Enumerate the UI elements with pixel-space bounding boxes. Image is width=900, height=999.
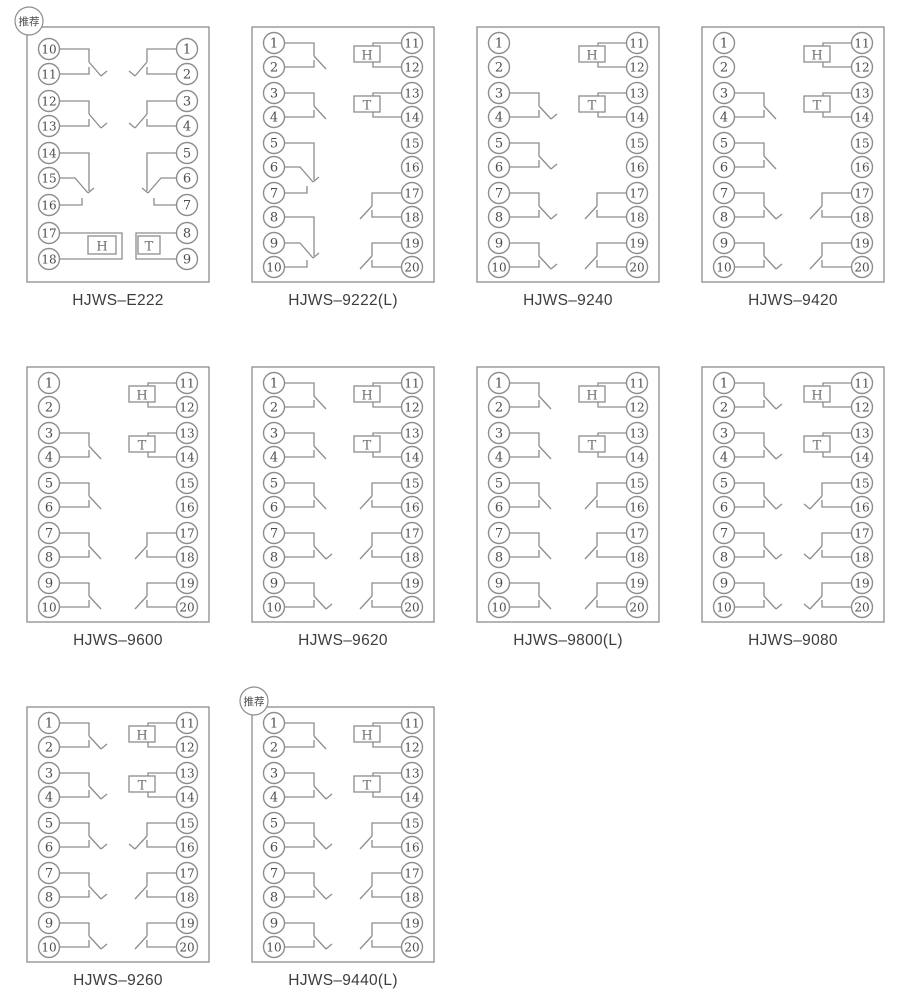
contact-nc-symbol-blade	[764, 496, 776, 509]
terminal-number: 9	[495, 577, 503, 592]
terminal-number: 14	[629, 111, 645, 125]
contact-no-symbol	[372, 923, 402, 936]
recommended-badge-label: 推荐	[19, 15, 40, 28]
terminal-number: 14	[404, 791, 420, 805]
terminal-number: 19	[629, 577, 644, 591]
contact-nc-symbol	[147, 101, 177, 114]
contact-nc-symbol	[147, 840, 177, 847]
terminal-number: 19	[404, 917, 419, 931]
terminal-number: 15	[854, 477, 869, 491]
contact-no-symbol-blade	[360, 836, 372, 849]
contact-nc-symbol-blade	[314, 786, 326, 799]
terminal-number: 16	[854, 501, 869, 515]
contact-no-symbol	[285, 740, 315, 747]
contact-no-symbol-blade	[360, 596, 372, 609]
nc-tick	[326, 844, 332, 849]
terminal-number: 15	[629, 137, 644, 151]
terminal-number: 5	[495, 477, 503, 492]
terminal-number: 8	[270, 551, 278, 566]
contact-no-symbol	[372, 483, 402, 496]
contact-nc-symbol	[822, 550, 852, 557]
contact-no-symbol-blade	[585, 496, 597, 509]
terminal-number: 15	[404, 137, 419, 151]
contact-no-symbol	[285, 450, 315, 457]
nc-tick	[326, 554, 332, 559]
nc-tick	[129, 844, 135, 849]
contact-nc-symbol-blade	[539, 256, 551, 269]
contact-nc-symbol	[822, 483, 852, 496]
contact-nc-symbol	[510, 93, 540, 106]
nc-tick	[776, 214, 782, 219]
terminal-number: 19	[629, 237, 644, 251]
changeover-symbol	[285, 260, 308, 267]
contact-nc-symbol	[510, 260, 540, 267]
contact-nc-symbol	[60, 923, 90, 936]
terminal-number: 10	[491, 601, 506, 615]
contact-nc-symbol	[510, 243, 540, 256]
contact-no-symbol	[147, 923, 177, 936]
contact-no-symbol	[60, 533, 90, 546]
changeover-symbol	[60, 153, 90, 191]
contact-nc-symbol-blade	[314, 886, 326, 899]
contact-nc-symbol	[735, 550, 765, 557]
contact-no-symbol-blade	[89, 546, 101, 559]
terminal-number: 18	[404, 551, 419, 565]
contact-no-symbol	[147, 583, 177, 596]
diagram-label: HJWS–9600	[73, 632, 163, 649]
contact-nc-symbol-blade	[89, 114, 101, 128]
terminal-number: 1	[720, 377, 728, 392]
terminal-number: 11	[854, 377, 869, 391]
contact-no-symbol	[285, 43, 315, 56]
terminal-number: 4	[270, 111, 278, 126]
contact-no-symbol-blade	[360, 936, 372, 949]
terminal-number: 12	[404, 741, 419, 755]
contact-no-symbol	[372, 940, 402, 947]
contact-no-symbol	[372, 890, 402, 897]
terminal-number: 12	[404, 61, 419, 75]
terminal-number: 9	[270, 917, 278, 932]
terminal-number: 10	[266, 261, 281, 275]
coil-letter: T	[363, 99, 372, 114]
contact-no-symbol	[285, 500, 315, 507]
nc-tick	[776, 554, 782, 559]
contact-nc-symbol-blade	[764, 596, 776, 609]
diagram-label: HJWS–E222	[72, 292, 163, 309]
terminal-number: 14	[854, 111, 870, 125]
coil-letter: H	[361, 389, 372, 404]
nc-tick	[101, 794, 107, 799]
terminal-number: 8	[45, 551, 53, 566]
nc-tick	[804, 554, 810, 559]
terminal-number: 11	[404, 37, 419, 51]
terminal-number: 18	[179, 551, 194, 565]
terminal-number: 20	[854, 261, 869, 275]
contact-nc-symbol-blade	[539, 106, 551, 119]
nc-tick	[326, 794, 332, 799]
contact-no-symbol-blade	[314, 396, 326, 409]
contact-no-symbol-blade	[585, 596, 597, 609]
terminal-number: 15	[404, 477, 419, 491]
terminal-number: 12	[41, 95, 56, 109]
contact-no-symbol	[372, 210, 402, 217]
terminal-number: 10	[41, 43, 56, 57]
changeover-symbol	[285, 217, 315, 256]
contact-no-symbol	[372, 550, 402, 557]
contact-no-symbol-blade	[585, 206, 597, 219]
terminal-number: 19	[404, 577, 419, 591]
terminal-number: 16	[404, 501, 419, 515]
contact-no-symbol	[597, 483, 627, 496]
nc-tick	[326, 604, 332, 609]
changeover-symbol	[60, 198, 83, 205]
diagram-label: HJWS–9222(L)	[288, 292, 398, 309]
terminal-number: 9	[270, 577, 278, 592]
terminal-number: 3	[270, 87, 278, 102]
terminal-number: 14	[179, 451, 195, 465]
nc-tick	[326, 944, 332, 949]
terminal-number: 20	[179, 601, 194, 615]
diagram-label: HJWS–9620	[298, 632, 388, 649]
contact-nc-symbol-blade	[539, 206, 551, 219]
terminal-number: 5	[720, 477, 728, 492]
contact-nc-symbol	[735, 450, 765, 457]
terminal-number: 19	[179, 577, 194, 591]
contact-no-symbol-blade	[135, 546, 147, 559]
terminal-number: 16	[404, 161, 419, 175]
contact-nc-symbol	[510, 160, 540, 167]
terminal-number: 8	[495, 551, 503, 566]
terminal-number: 18	[854, 551, 869, 565]
recommended-badge-label: 推荐	[244, 695, 265, 708]
terminal-number: 8	[45, 891, 53, 906]
terminal-number: 2	[45, 401, 53, 416]
contact-no-symbol	[822, 193, 852, 206]
nc-tick	[101, 744, 107, 749]
contact-nc-symbol	[60, 840, 90, 847]
terminal-number: 13	[404, 767, 419, 781]
contact-no-symbol	[597, 193, 627, 206]
contact-nc-symbol	[60, 101, 90, 114]
contact-nc-symbol-blade	[539, 156, 551, 169]
terminal-number: 8	[270, 891, 278, 906]
terminal-number: 13	[179, 767, 194, 781]
contact-no-symbol	[822, 243, 852, 256]
diagram-cell-hjws-9222l: HT1234567891011121314151617181920HJWS–92…	[230, 5, 456, 357]
contact-nc-symbol	[285, 873, 315, 886]
contact-no-symbol	[510, 483, 540, 496]
terminal-number: 2	[495, 61, 503, 76]
contact-no-symbol	[510, 400, 540, 407]
terminal-number: 20	[179, 941, 194, 955]
contact-nc-symbol-blade	[810, 546, 822, 559]
contact-nc-symbol	[735, 260, 765, 267]
terminal-number: 15	[404, 817, 419, 831]
terminal-number: 18	[179, 891, 194, 905]
terminal-number: 15	[179, 817, 194, 831]
contact-nc-symbol	[510, 193, 540, 206]
terminal-number: 6	[270, 501, 278, 516]
diagram-label: HJWS–9420	[748, 292, 838, 309]
terminal-number: 1	[270, 377, 278, 392]
contact-no-symbol	[147, 940, 177, 947]
terminal-number: 5	[270, 817, 278, 832]
terminal-number: 19	[179, 917, 194, 931]
contact-nc-symbol	[735, 243, 765, 256]
contact-nc-symbol	[735, 583, 765, 596]
terminal-number: 9	[183, 253, 191, 268]
terminal-number: 14	[629, 451, 645, 465]
nc-tick	[776, 604, 782, 609]
terminal-number: 16	[179, 501, 194, 515]
nc-tick	[101, 844, 107, 849]
terminal-number: 17	[179, 527, 194, 541]
contact-no-symbol	[597, 260, 627, 267]
terminal-number: 17	[854, 527, 869, 541]
terminal-number: 16	[404, 841, 419, 855]
terminal-number: 7	[495, 187, 503, 202]
coil-letter: H	[361, 729, 372, 744]
contact-no-symbol-blade	[810, 206, 822, 219]
contact-nc-symbol	[285, 533, 315, 546]
contact-no-symbol	[60, 500, 90, 507]
contact-nc-symbol-blade	[89, 836, 101, 849]
contact-no-symbol	[597, 210, 627, 217]
terminal-number: 4	[270, 791, 278, 806]
contact-nc-symbol	[822, 583, 852, 596]
terminal-number: 3	[45, 767, 53, 782]
terminal-number: 11	[854, 37, 869, 51]
terminal-number: 7	[270, 187, 278, 202]
contact-no-symbol-blade	[764, 106, 776, 119]
coil-letter: H	[586, 389, 597, 404]
contact-nc-symbol-blade	[314, 936, 326, 949]
contact-no-symbol-blade	[360, 496, 372, 509]
coil-letter: H	[811, 389, 822, 404]
contact-no-symbol	[147, 550, 177, 557]
terminal-number: 8	[270, 211, 278, 226]
coil-letter: T	[588, 439, 597, 454]
contact-nc-symbol	[822, 500, 852, 507]
contact-no-symbol	[510, 500, 540, 507]
nc-tick	[326, 894, 332, 899]
contact-nc-symbol-blade	[314, 546, 326, 559]
terminal-number: 17	[404, 867, 419, 881]
terminal-number: 6	[720, 161, 728, 176]
contact-no-symbol-blade	[314, 736, 326, 749]
terminal-number: 9	[720, 237, 728, 252]
terminal-number: 10	[716, 261, 731, 275]
contact-nc-symbol	[510, 110, 540, 117]
nc-tick	[101, 123, 107, 128]
terminal-number: 12	[404, 401, 419, 415]
diagram-label: HJWS–9800(L)	[513, 632, 623, 649]
terminal-number: 20	[404, 941, 419, 955]
coil-letter: T	[138, 779, 147, 794]
contact-nc-symbol-blade	[135, 114, 147, 128]
terminal-number: 14	[404, 111, 420, 125]
contact-nc-symbol	[822, 533, 852, 546]
terminal-number: 11	[179, 717, 194, 731]
contact-nc-symbol-blade	[764, 396, 776, 409]
diagram-cell-hjws-9620: HT1234567891011121314151617181920HJWS–96…	[230, 345, 456, 697]
contact-nc-symbol	[510, 210, 540, 217]
contact-nc-symbol	[147, 49, 177, 62]
terminal-number: 10	[266, 941, 281, 955]
terminal-number: 6	[495, 161, 503, 176]
relay-diagram-hjws-9260: HT1234567891011121314151617181920HJWS–92…	[5, 685, 231, 999]
contact-no-symbol	[147, 873, 177, 886]
changeover-symbol	[285, 186, 308, 193]
contact-nc-symbol	[60, 823, 90, 836]
terminal-number: 12	[629, 401, 644, 415]
contact-no-symbol	[822, 210, 852, 217]
contact-no-symbol	[372, 260, 402, 267]
contact-no-symbol	[510, 433, 540, 446]
contact-no-symbol-blade	[539, 496, 551, 509]
terminal-number: 20	[404, 261, 419, 275]
terminal-number: 15	[179, 477, 194, 491]
coil-letter: T	[813, 99, 822, 114]
changeover-blade	[285, 167, 314, 182]
terminal-number: 11	[404, 717, 419, 731]
terminal-number: 14	[854, 451, 870, 465]
changeover-blade	[148, 178, 177, 193]
terminal-number: 17	[41, 227, 56, 241]
terminal-number: 1	[720, 37, 728, 52]
contact-nc-symbol-blade	[89, 786, 101, 799]
contact-nc-symbol	[60, 873, 90, 886]
contact-no-symbol-blade	[360, 546, 372, 559]
terminal-number: 17	[404, 187, 419, 201]
contact-no-symbol	[60, 483, 90, 496]
contact-nc-symbol	[147, 823, 177, 836]
contact-nc-symbol-blade	[135, 836, 147, 849]
terminal-number: 11	[629, 37, 644, 51]
contact-no-symbol	[597, 550, 627, 557]
contact-nc-symbol-blade	[314, 836, 326, 849]
changeover-symbol	[154, 198, 177, 205]
terminal-number: 11	[404, 377, 419, 391]
contact-no-symbol-blade	[314, 56, 326, 69]
terminal-number: 8	[183, 227, 191, 242]
terminal-number: 12	[629, 61, 644, 75]
contact-nc-symbol-blade	[89, 62, 101, 76]
terminal-number: 3	[495, 87, 503, 102]
terminal-number: 6	[45, 501, 53, 516]
terminal-number: 6	[495, 501, 503, 516]
terminal-number: 10	[491, 261, 506, 275]
contact-no-symbol-blade	[314, 106, 326, 119]
coil-letter: H	[96, 240, 107, 255]
contact-nc-symbol	[735, 383, 765, 396]
contact-nc-symbol	[60, 67, 90, 74]
terminal-number: 13	[854, 427, 869, 441]
terminal-number: 20	[629, 261, 644, 275]
nc-tick	[804, 604, 810, 609]
terminal-number: 18	[404, 211, 419, 225]
terminal-number: 12	[179, 401, 194, 415]
terminal-number: 5	[270, 137, 278, 152]
coil-letter: T	[138, 439, 147, 454]
terminal-number: 6	[270, 841, 278, 856]
nc-tick	[129, 123, 135, 128]
terminal-number: 1	[183, 43, 191, 58]
contact-no-symbol	[147, 890, 177, 897]
terminal-number: 13	[404, 427, 419, 441]
terminal-number: 11	[179, 377, 194, 391]
contact-nc-symbol	[60, 890, 90, 897]
terminal-number: 9	[45, 917, 53, 932]
relay-diagram-hjws-9620: HT1234567891011121314151617181920HJWS–96…	[230, 345, 456, 692]
contact-no-symbol	[735, 93, 765, 106]
contact-nc-symbol	[285, 773, 315, 786]
contact-nc-symbol	[285, 600, 315, 607]
coil-letter: H	[811, 49, 822, 64]
contact-no-symbol-blade	[135, 936, 147, 949]
terminal-number: 10	[716, 601, 731, 615]
contact-nc-symbol	[60, 119, 90, 126]
terminal-number: 2	[495, 401, 503, 416]
contact-no-symbol-blade	[539, 396, 551, 409]
contact-no-symbol	[735, 143, 765, 156]
relay-diagram-hjws-9440l: HT1234567891011121314151617181920推荐HJWS–…	[230, 685, 456, 999]
relay-diagram-hjws-9222l: HT1234567891011121314151617181920HJWS–92…	[230, 5, 456, 352]
contact-no-symbol	[60, 583, 90, 596]
terminal-number: 3	[720, 427, 728, 442]
terminal-number: 5	[720, 137, 728, 152]
coil-letter: H	[136, 389, 147, 404]
contact-nc-symbol	[735, 533, 765, 546]
contact-no-symbol	[735, 160, 765, 167]
terminal-number: 14	[41, 147, 57, 161]
coil-letter: T	[363, 439, 372, 454]
terminal-number: 6	[720, 501, 728, 516]
terminal-number: 15	[854, 137, 869, 151]
terminal-number: 17	[629, 187, 644, 201]
contact-no-symbol	[285, 723, 315, 736]
contact-nc-symbol	[60, 49, 90, 62]
contact-no-symbol-blade	[89, 446, 101, 459]
terminal-number: 17	[179, 867, 194, 881]
nc-tick	[804, 504, 810, 509]
contact-nc-symbol	[735, 210, 765, 217]
contact-no-symbol-blade	[314, 496, 326, 509]
terminal-number: 14	[179, 791, 195, 805]
contact-nc-symbol-blade	[764, 546, 776, 559]
terminal-number: 1	[270, 717, 278, 732]
nc-tick	[101, 894, 107, 899]
contact-no-symbol	[372, 193, 402, 206]
terminal-number: 16	[179, 841, 194, 855]
contact-no-symbol-blade	[89, 496, 101, 509]
nc-tick	[776, 264, 782, 269]
contact-no-symbol	[822, 260, 852, 267]
contact-no-symbol	[285, 400, 315, 407]
contact-no-symbol	[372, 533, 402, 546]
terminal-number: 2	[270, 61, 278, 76]
diagram-cell-hjws-9440l: HT1234567891011121314151617181920推荐HJWS–…	[230, 685, 456, 999]
terminal-number: 8	[495, 211, 503, 226]
contact-no-symbol-blade	[314, 446, 326, 459]
contact-nc-symbol	[735, 400, 765, 407]
contact-nc-symbol-blade	[89, 736, 101, 749]
contact-no-symbol	[510, 533, 540, 546]
terminal-number: 12	[179, 741, 194, 755]
diagram-cell-hjws-9240: HT1234567891011121314151617181920HJWS–92…	[455, 5, 681, 357]
contact-no-symbol-blade	[539, 446, 551, 459]
terminal-number: 18	[41, 253, 56, 267]
